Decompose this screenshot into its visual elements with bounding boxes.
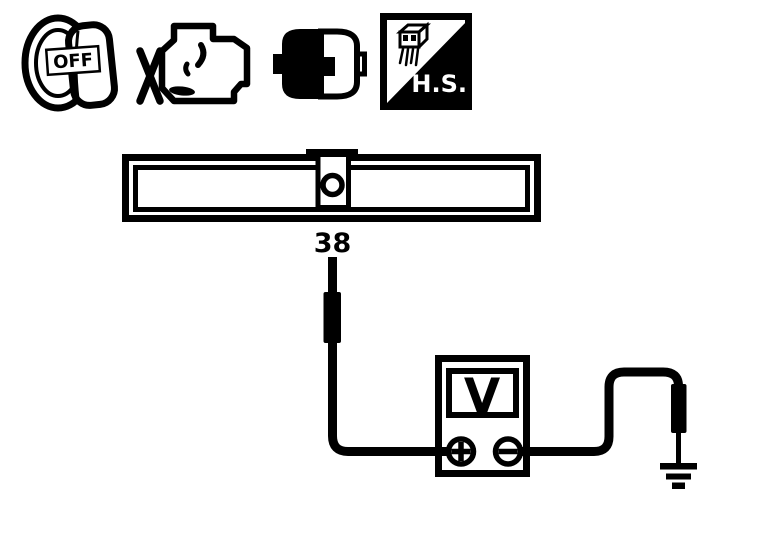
ground-bar-2 bbox=[666, 474, 691, 480]
test-circuit-diagram: 38 V bbox=[0, 0, 768, 544]
negative-test-lead-wire bbox=[508, 372, 679, 452]
service-manual-test-diagram: OFF H.S. bbox=[0, 0, 768, 544]
voltmeter-display-label: V bbox=[464, 369, 501, 424]
ground-bar-3 bbox=[672, 483, 685, 490]
earth-ground-symbol bbox=[660, 463, 697, 489]
ground-probe bbox=[671, 384, 687, 463]
probe-body bbox=[671, 384, 687, 433]
inline-probe-connector bbox=[324, 292, 342, 343]
positive-terminal bbox=[449, 439, 474, 464]
ground-bar-1 bbox=[660, 463, 697, 470]
sensor-connector-bar bbox=[126, 152, 538, 219]
terminal-hole bbox=[323, 176, 342, 195]
negative-terminal bbox=[496, 439, 521, 464]
terminal-number-label: 38 bbox=[314, 228, 352, 259]
